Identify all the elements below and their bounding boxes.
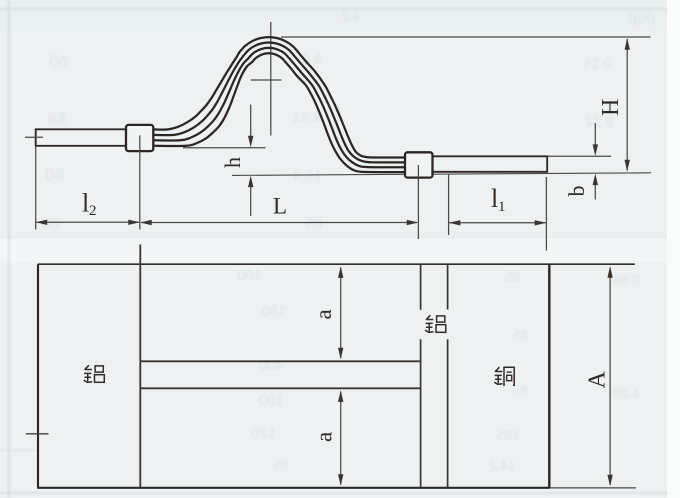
svg-text:85: 85 (305, 215, 322, 232)
svg-text:L: L (273, 194, 287, 219)
svg-text:6.31: 6.31 (293, 109, 322, 126)
svg-text:100: 100 (261, 303, 286, 320)
svg-text:(Kg): (Kg) (629, 9, 655, 25)
svg-text:14.2: 14.2 (490, 458, 515, 473)
svg-text:60: 60 (49, 52, 68, 71)
svg-text:100: 100 (237, 267, 262, 284)
svg-text:a: a (311, 309, 336, 319)
svg-text:100: 100 (259, 392, 284, 409)
svg-text:b: b (564, 186, 589, 197)
svg-text:85: 85 (504, 269, 520, 285)
svg-text:0.15: 0.15 (583, 55, 612, 72)
svg-text:a: a (312, 432, 337, 442)
svg-text:0.66: 0.66 (613, 271, 640, 287)
svg-text:60: 60 (41, 215, 60, 234)
svg-text:1: 1 (498, 199, 506, 215)
svg-text:A: A (585, 371, 611, 389)
svg-text:2: 2 (89, 203, 97, 219)
svg-text:85: 85 (512, 327, 528, 343)
svg-text:68: 68 (47, 109, 66, 128)
svg-text:4.20: 4.20 (613, 385, 640, 401)
svg-text:H: H (598, 99, 624, 116)
svg-text:4.2: 4.2 (342, 8, 360, 23)
svg-text:h: h (220, 157, 245, 168)
svg-text:120: 120 (251, 425, 276, 442)
svg-text:85: 85 (272, 457, 288, 473)
svg-text:60: 60 (45, 165, 64, 184)
svg-text:400: 400 (259, 357, 284, 374)
svg-text:105: 105 (496, 427, 520, 443)
